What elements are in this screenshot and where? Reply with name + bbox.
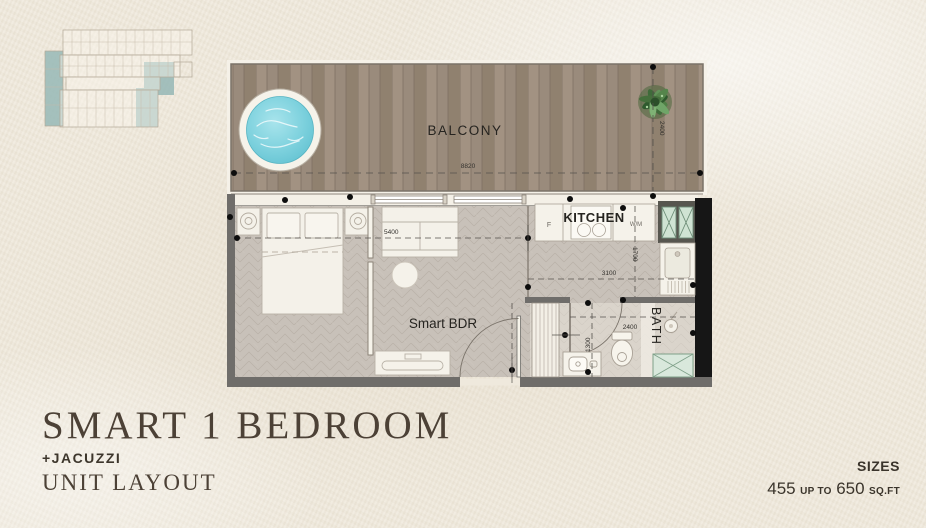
unit-layout-label: UNIT LAYOUT bbox=[42, 470, 452, 496]
nightstand-right bbox=[345, 208, 371, 235]
bath-depth-dim: 1300 bbox=[585, 337, 592, 352]
toilet bbox=[612, 332, 633, 366]
unit-title: SMART 1 BEDROOM bbox=[42, 405, 452, 447]
plant bbox=[638, 85, 672, 119]
size-connector: UP TO bbox=[800, 486, 832, 497]
balcony-label: BALCONY bbox=[427, 123, 502, 138]
title-block: SMART 1 BEDROOM +JACUZZI UNIT LAYOUT bbox=[42, 405, 452, 496]
size-from: 455 bbox=[767, 479, 795, 498]
bed bbox=[262, 208, 343, 314]
kitchen-label: KITCHEN bbox=[563, 210, 624, 225]
nightstand-left bbox=[237, 208, 260, 235]
round-table bbox=[392, 262, 418, 288]
balcony-depth-dim: 2400 bbox=[658, 121, 665, 136]
bath-label: BATH bbox=[649, 307, 663, 345]
wall-left bbox=[227, 194, 235, 387]
kitchen-sink bbox=[660, 243, 695, 295]
console-dresser bbox=[375, 351, 450, 375]
partition-wall bbox=[368, 207, 373, 355]
closet bbox=[532, 303, 559, 377]
size-unit: SQ.FT bbox=[869, 486, 900, 497]
wall-bottom-right bbox=[520, 377, 712, 387]
sizes-value: 455 UP TO 650 SQ.FT bbox=[767, 479, 900, 499]
size-to: 650 bbox=[836, 479, 864, 498]
washing-machine-label: W/M bbox=[630, 222, 642, 228]
fridge-label: F bbox=[547, 222, 551, 229]
sizes-block: SIZES 455 UP TO 650 SQ.FT bbox=[767, 458, 900, 499]
floor-plan: 8820 2400 BALCONY bbox=[222, 55, 717, 395]
balcony-width-dim: 8820 bbox=[461, 163, 476, 170]
wall-bath-left bbox=[525, 297, 570, 303]
balcony: 8820 2400 BALCONY bbox=[227, 60, 707, 195]
entry-threshold bbox=[460, 379, 520, 386]
wall-right-black bbox=[695, 198, 712, 377]
keyplan bbox=[40, 24, 200, 138]
shower-drain-hatch bbox=[653, 354, 693, 377]
bath-width-dim: 2400 bbox=[623, 324, 638, 331]
sofa-dim: 5400 bbox=[384, 229, 399, 236]
vanity-sink bbox=[563, 352, 601, 376]
kitchen-width-dim: 3100 bbox=[602, 270, 617, 277]
bedroom-label: Smart BDR bbox=[409, 316, 478, 331]
wall-bottom-left bbox=[227, 377, 460, 387]
service-shaft bbox=[658, 201, 695, 243]
wall-bath-right bbox=[620, 297, 695, 303]
unit-subtitle: +JACUZZI bbox=[42, 450, 452, 466]
sizes-label: SIZES bbox=[767, 458, 900, 474]
kitchen-depth-dim: 1700 bbox=[631, 247, 638, 262]
jacuzzi bbox=[239, 89, 321, 171]
